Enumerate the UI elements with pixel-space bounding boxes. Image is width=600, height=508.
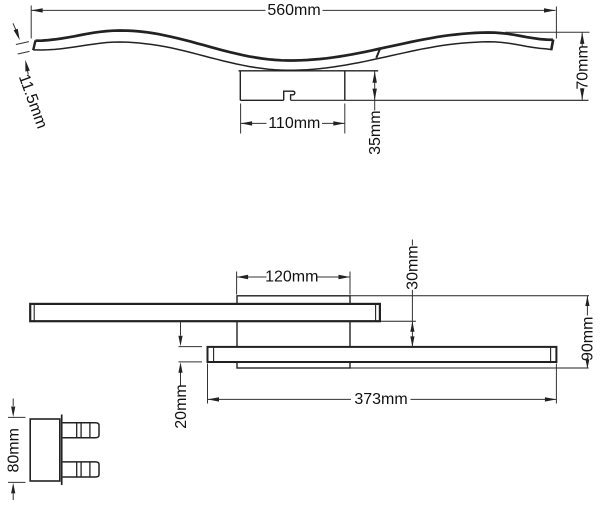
svg-text:80mm: 80mm [6,428,23,472]
svg-text:20mm: 20mm [173,384,190,428]
svg-text:560mm: 560mm [267,2,320,19]
svg-text:70mm: 70mm [575,45,592,89]
svg-text:373mm: 373mm [354,391,407,408]
svg-text:30mm: 30mm [405,245,422,289]
svg-text:110mm: 110mm [268,115,320,132]
svg-text:120mm: 120mm [265,269,318,286]
svg-text:90mm: 90mm [580,317,597,361]
svg-text:35mm: 35mm [367,110,384,154]
